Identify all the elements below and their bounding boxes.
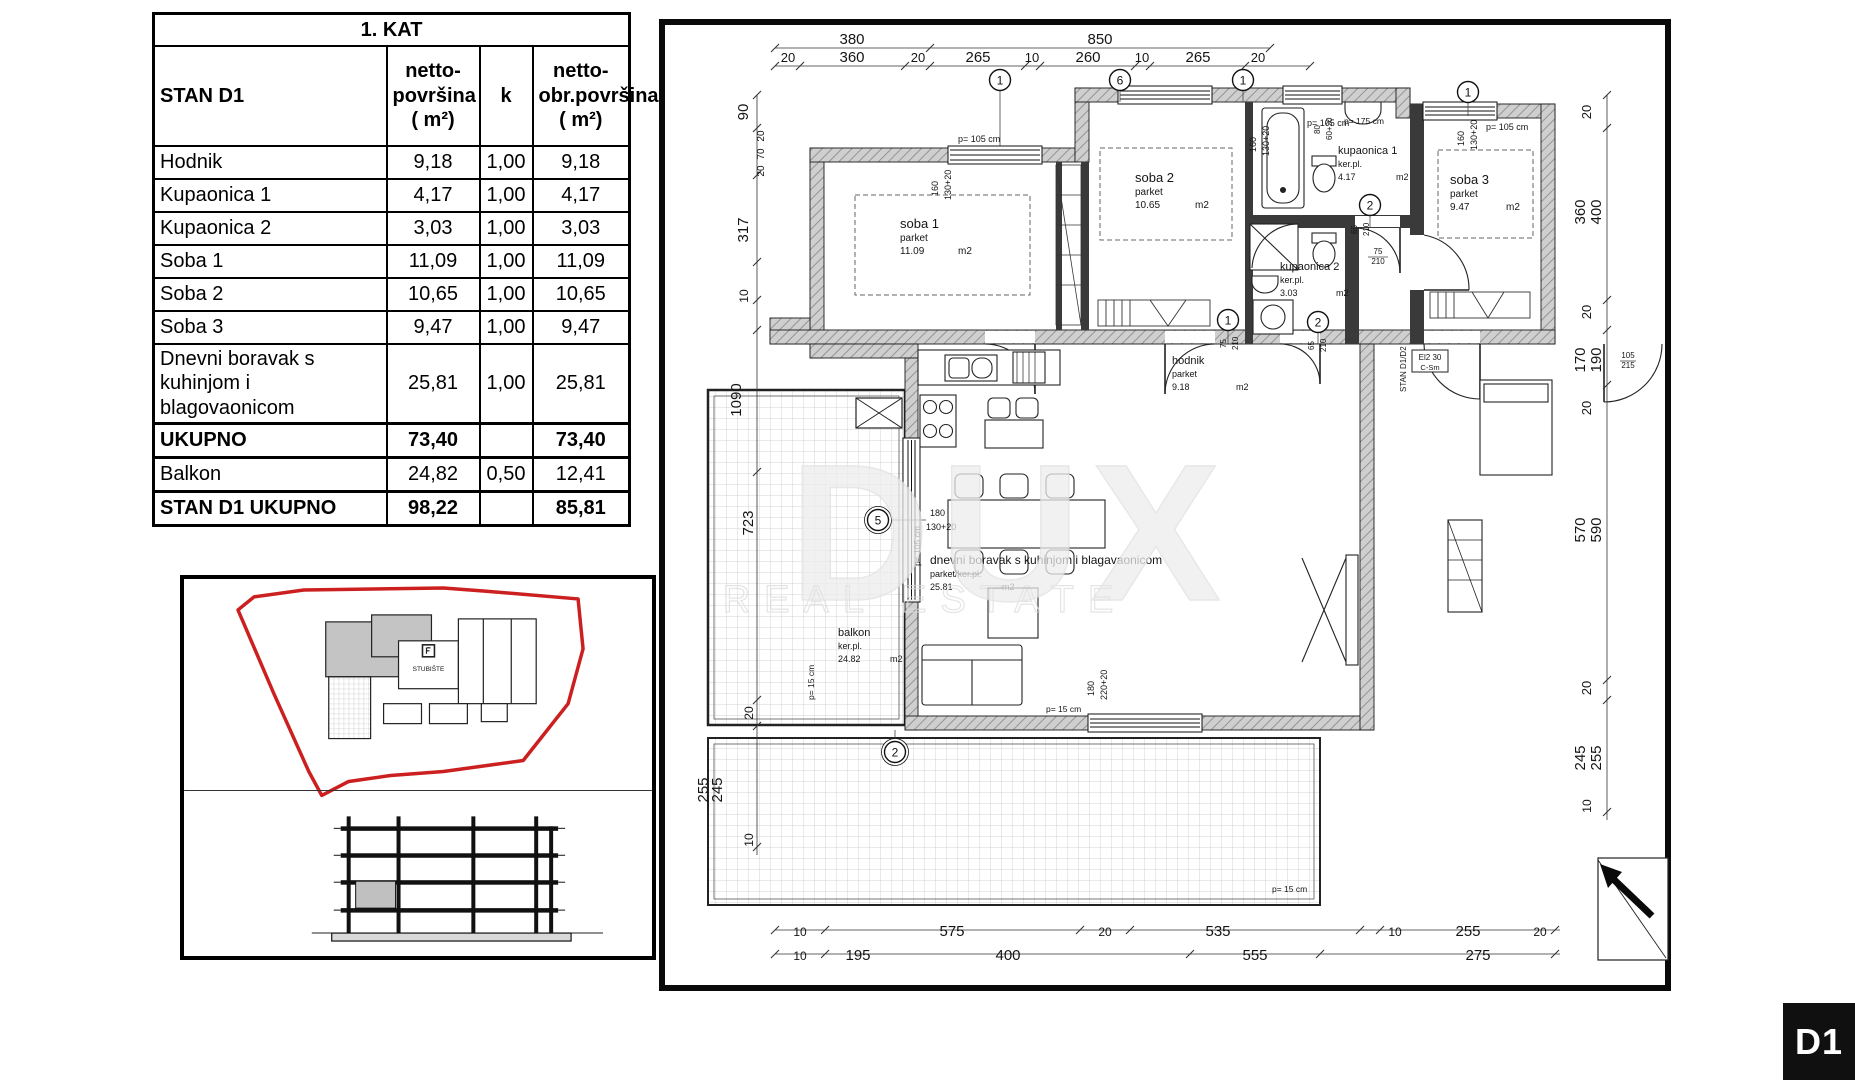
annotation-label: p= 105 cm [958,134,1000,144]
dimension-label: 850 [1087,31,1112,48]
annotation-label: 130+20 [1469,120,1479,150]
annotation-label: 160 [1456,131,1466,146]
dimension-label: 20 [1579,305,1594,319]
dimension-label: 20 [911,50,925,65]
room-name: soba 2 [1135,170,1174,185]
annotation-label: 105 [1621,351,1635,360]
axis-marker-number: 1 [1465,86,1472,100]
room-area-unit: m2 [890,654,903,664]
room-name: kupaonica 1 [1338,145,1397,157]
room-floor: ker.pl. [1338,159,1362,169]
annotation-label: C-Sm [1420,363,1439,372]
dimension-label: 10 [1388,925,1402,939]
room-area: 24.82 [838,654,861,664]
annotation-label: 210 [1371,257,1385,266]
dimension-label: 1090 [728,383,745,416]
room-area-unit: m2 [1396,172,1409,182]
dimension-label: 265 [1185,49,1210,66]
north-arrow [1598,858,1668,960]
dimension-label: 10 [1135,50,1149,65]
dimension-label: 275 [1465,947,1490,964]
axis-marker-number: 2 [1367,199,1374,213]
room-area-unit: m2 [1336,288,1349,298]
annotation-label: p= 15 cm [1272,884,1307,894]
room-area-unit: m2 [1195,200,1209,211]
dimension-label: 570 [1572,517,1589,542]
dimension-label: 70 [756,148,767,160]
annotation-label: STAN D1/D2 [1399,346,1408,392]
terrace [708,738,1320,905]
room-area-unit: m2 [1506,202,1520,213]
dimension-label: 590 [1588,517,1605,542]
axis-marker-number: 6 [1117,74,1124,88]
annotation-label: 160 [1248,137,1258,152]
room-name: kupaonica 2 [1280,261,1339,273]
room-area: 4.17 [1338,172,1356,182]
annotation-label: El2 30 [1419,353,1442,362]
annotation-label: 210 [1362,222,1371,236]
room-area-unit: m2 [958,246,972,257]
room-floor: parket [1135,187,1163,198]
dimension-label: 170 [1572,347,1589,372]
annotation-label: 210 [1319,338,1328,352]
room-name: hodnik [1172,355,1205,367]
dimension-label: 255 [1455,923,1480,940]
dimension-label: 195 [845,947,870,964]
dimension-label: 10 [1580,799,1594,813]
annotation-label: 75 [1374,247,1383,256]
annotation-label: p= 15 cm [1046,704,1081,714]
dimension-label: 535 [1205,923,1230,940]
annotation-label: 80 [1313,125,1322,134]
watermark-line2: REAL ESTATE [723,579,1128,621]
room-area: 9.18 [1172,382,1190,392]
annotation-label: 180 [1086,681,1096,696]
room-area-unit: m2 [1236,382,1249,392]
dimension-label: 20 [1098,925,1112,939]
axis-marker-number: 2 [892,746,899,760]
dimension-label: 20 [1251,50,1265,65]
axis-marker-number: 1 [1225,314,1232,328]
annotation-label: 65 [1307,341,1316,350]
annotation-label: p= 15 cm [806,665,816,700]
dimension-label: 20 [756,130,767,142]
dimension-label: 723 [740,510,757,535]
dimension-label: 10 [742,833,756,847]
sheet-badge: D1 [1783,1003,1855,1080]
annotation-label: p= 105 cm [1486,122,1528,132]
dimension-label: 90 [735,104,752,121]
dimension-label: 555 [1242,947,1267,964]
axis-marker-number: 2 [1315,316,1322,330]
drawing-sheet: 1. KAT STAN D1 netto- površina ( m²) k n… [0,0,1855,1080]
annotation-label: 75 [1219,339,1228,348]
dimension-label: 255 [1588,745,1605,770]
annotation-label: p= 175 cm [1344,116,1384,126]
dimension-label: 245 [709,777,726,802]
annotation-label: 65 [1350,225,1359,234]
room-area: 11.09 [900,246,925,257]
dimension-label: 265 [965,49,990,66]
dimension-label: 575 [939,923,964,940]
axis-marker-number: 1 [997,74,1004,88]
dimension-label: 10 [793,925,807,939]
dimension-label: 10 [737,289,751,303]
sheet-badge-label: D1 [1795,1021,1843,1063]
floor-plan: soba 1parket11.09m2soba 2parket10.65m2so… [0,0,1855,1080]
dimension-label: 20 [1579,681,1594,695]
annotation-label: 160 [930,181,940,196]
dimension-label: 20 [781,50,795,65]
axis-marker-number: 1 [1240,74,1247,88]
room-area: 10.65 [1135,200,1160,211]
dimension-label: 10 [1025,50,1039,65]
annotation-label: 130+20 [943,170,953,200]
dimension-label: 260 [1075,49,1100,66]
dimension-label: 20 [756,165,767,177]
dimension-label: 20 [1579,401,1594,415]
dimension-label: 360 [1572,199,1589,224]
annotation-label: 215 [1621,361,1635,370]
room-name: soba 3 [1450,172,1489,187]
annotation-label: 130+20 [1261,126,1271,156]
room-floor: ker.pl. [838,641,862,651]
room-name: soba 1 [900,216,939,231]
room-floor: parket [1172,369,1198,379]
dimension-label: 20 [1579,105,1594,119]
dimension-label: 380 [839,31,864,48]
dimension-label: 20 [742,706,756,720]
room-floor: parket [1450,189,1478,200]
room-floor: ker.pl. [1280,275,1304,285]
annotation-label: 220+20 [1099,670,1109,700]
room-area: 3.03 [1280,288,1298,298]
dimension-label: 190 [1588,347,1605,372]
dimension-label: 400 [995,947,1020,964]
room-floor: parket [900,233,928,244]
dimension-label: 317 [735,217,752,242]
dimension-label: 10 [793,949,807,963]
dimension-label: 245 [1572,745,1589,770]
room-area: 9.47 [1450,202,1470,213]
annotation-label: 210 [1231,336,1240,350]
dimension-label: 400 [1588,199,1605,224]
annotation-label: 60+20 [1325,117,1334,140]
dimension-label: 360 [839,49,864,66]
watermark: DUX REAL ESTATE [723,424,1231,642]
dimension-label: 20 [1533,925,1547,939]
